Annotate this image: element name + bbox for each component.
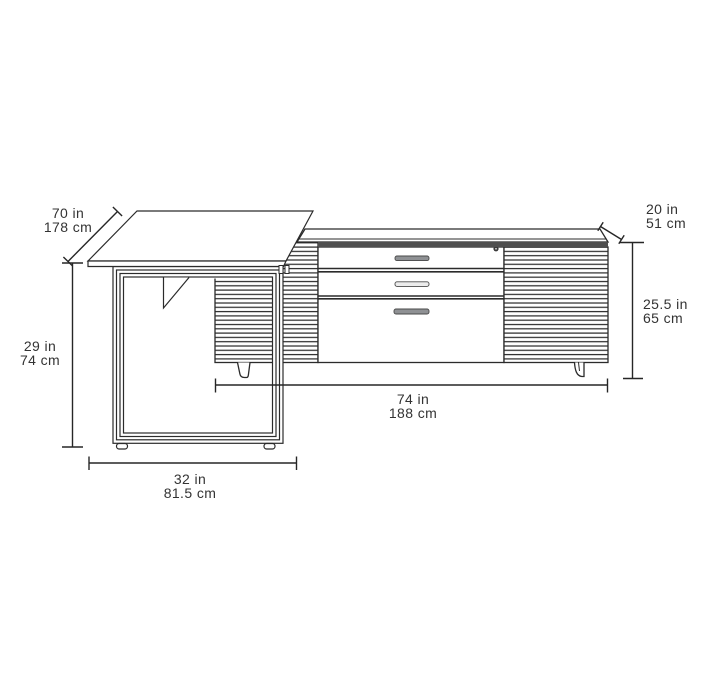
dim-credenza-height-cm: 65 cm <box>643 312 720 326</box>
drawer-handle-top <box>395 256 429 261</box>
dim-credenza-width-cm: 188 cm <box>373 407 453 421</box>
credenza-top <box>297 229 608 247</box>
dim-label-credenza-width: 74 in 188 cm <box>373 393 453 420</box>
credenza-foot-left <box>238 363 251 378</box>
desk-top <box>88 211 313 267</box>
desk-bracket <box>164 278 190 309</box>
dim-desk-height-cm: 74 cm <box>2 354 78 368</box>
dim-credenza-depth-cm: 51 cm <box>646 217 716 231</box>
dim-label-credenza-height: 25.5 in 65 cm <box>643 298 720 325</box>
dim-label-desk-depth: 70 in 178 cm <box>26 207 110 234</box>
dim-label-desk-width: 32 in 81.5 cm <box>150 473 230 500</box>
dim-label-desk-height: 29 in 74 cm <box>2 340 78 367</box>
dim-desk-depth-cm: 178 cm <box>26 221 110 235</box>
dim-desk-width-cm: 81.5 cm <box>150 487 230 501</box>
desk-credenza-bracket <box>285 266 289 274</box>
dim-line-desk-width <box>89 457 297 471</box>
desk-foot-left <box>117 444 128 450</box>
desk-drawing <box>88 211 313 449</box>
dim-label-credenza-depth: 20 in 51 cm <box>646 203 716 230</box>
credenza-right-louver-door <box>504 247 608 363</box>
dimension-diagram: 70 in 178 cm 20 in 51 cm 29 in 74 cm 25.… <box>0 0 720 700</box>
drawer-handle-bottom <box>394 309 429 314</box>
desk-credenza-bracket <box>279 266 283 274</box>
diagram-canvas <box>0 0 720 700</box>
drawer-handle-middle <box>395 282 429 287</box>
dim-line-credenza-height <box>620 243 644 379</box>
desk-foot-right <box>264 444 275 450</box>
credenza-drawers <box>318 246 504 362</box>
